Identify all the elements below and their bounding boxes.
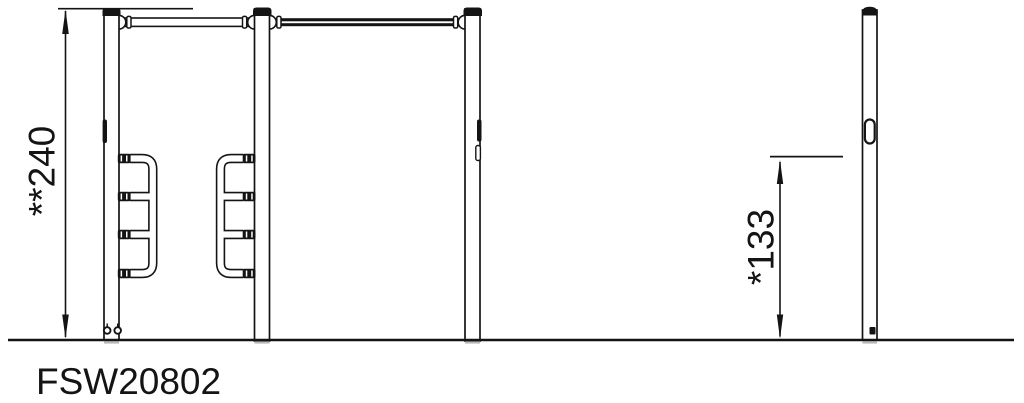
dimension-bar-height: *133	[741, 157, 844, 339]
dimension-label-133: *133	[741, 209, 782, 285]
post-cap-icon	[464, 8, 483, 17]
post-dome-cap-icon	[863, 7, 878, 16]
post-cap-icon	[103, 8, 121, 16]
technical-drawing-page: **240 *133	[0, 0, 1024, 403]
bar-collar	[277, 16, 281, 28]
dimension-label-240: **240	[22, 126, 63, 217]
bar-collar	[454, 16, 458, 28]
arrowhead-down-icon	[777, 315, 783, 339]
post-tube	[863, 10, 878, 340]
top-bars	[112, 15, 472, 29]
post-left	[104, 10, 119, 340]
post-right	[465, 9, 480, 341]
product-code-label: FSW20802	[36, 361, 221, 402]
climbing-ladder-left	[118, 154, 153, 279]
plain-top-bar	[119, 18, 255, 26]
post-cap-icon	[253, 8, 272, 17]
ground	[8, 340, 1014, 344]
post-latch-slot	[476, 146, 481, 161]
climbing-ladder-right	[220, 154, 255, 279]
post-shadow	[863, 341, 878, 343]
post-shadow	[465, 341, 480, 343]
bar-collar	[243, 16, 247, 28]
post-middle	[255, 9, 270, 341]
arrowhead-up-icon	[777, 160, 783, 184]
post-shadow	[255, 341, 270, 343]
post-latch-mark	[477, 120, 482, 142]
post-slot	[865, 120, 875, 144]
grip-top-bar	[270, 18, 466, 26]
post-shadow	[104, 341, 119, 343]
standalone-post	[863, 7, 878, 340]
playground-equipment-side-view: **240 *133	[0, 0, 1024, 403]
bar-collar	[127, 16, 131, 28]
post-latch-mark	[103, 120, 107, 144]
arrowhead-up-icon	[62, 10, 69, 35]
post-base-mark	[870, 327, 876, 335]
frame-posts	[103, 8, 483, 342]
arrowhead-down-icon	[62, 315, 69, 339]
